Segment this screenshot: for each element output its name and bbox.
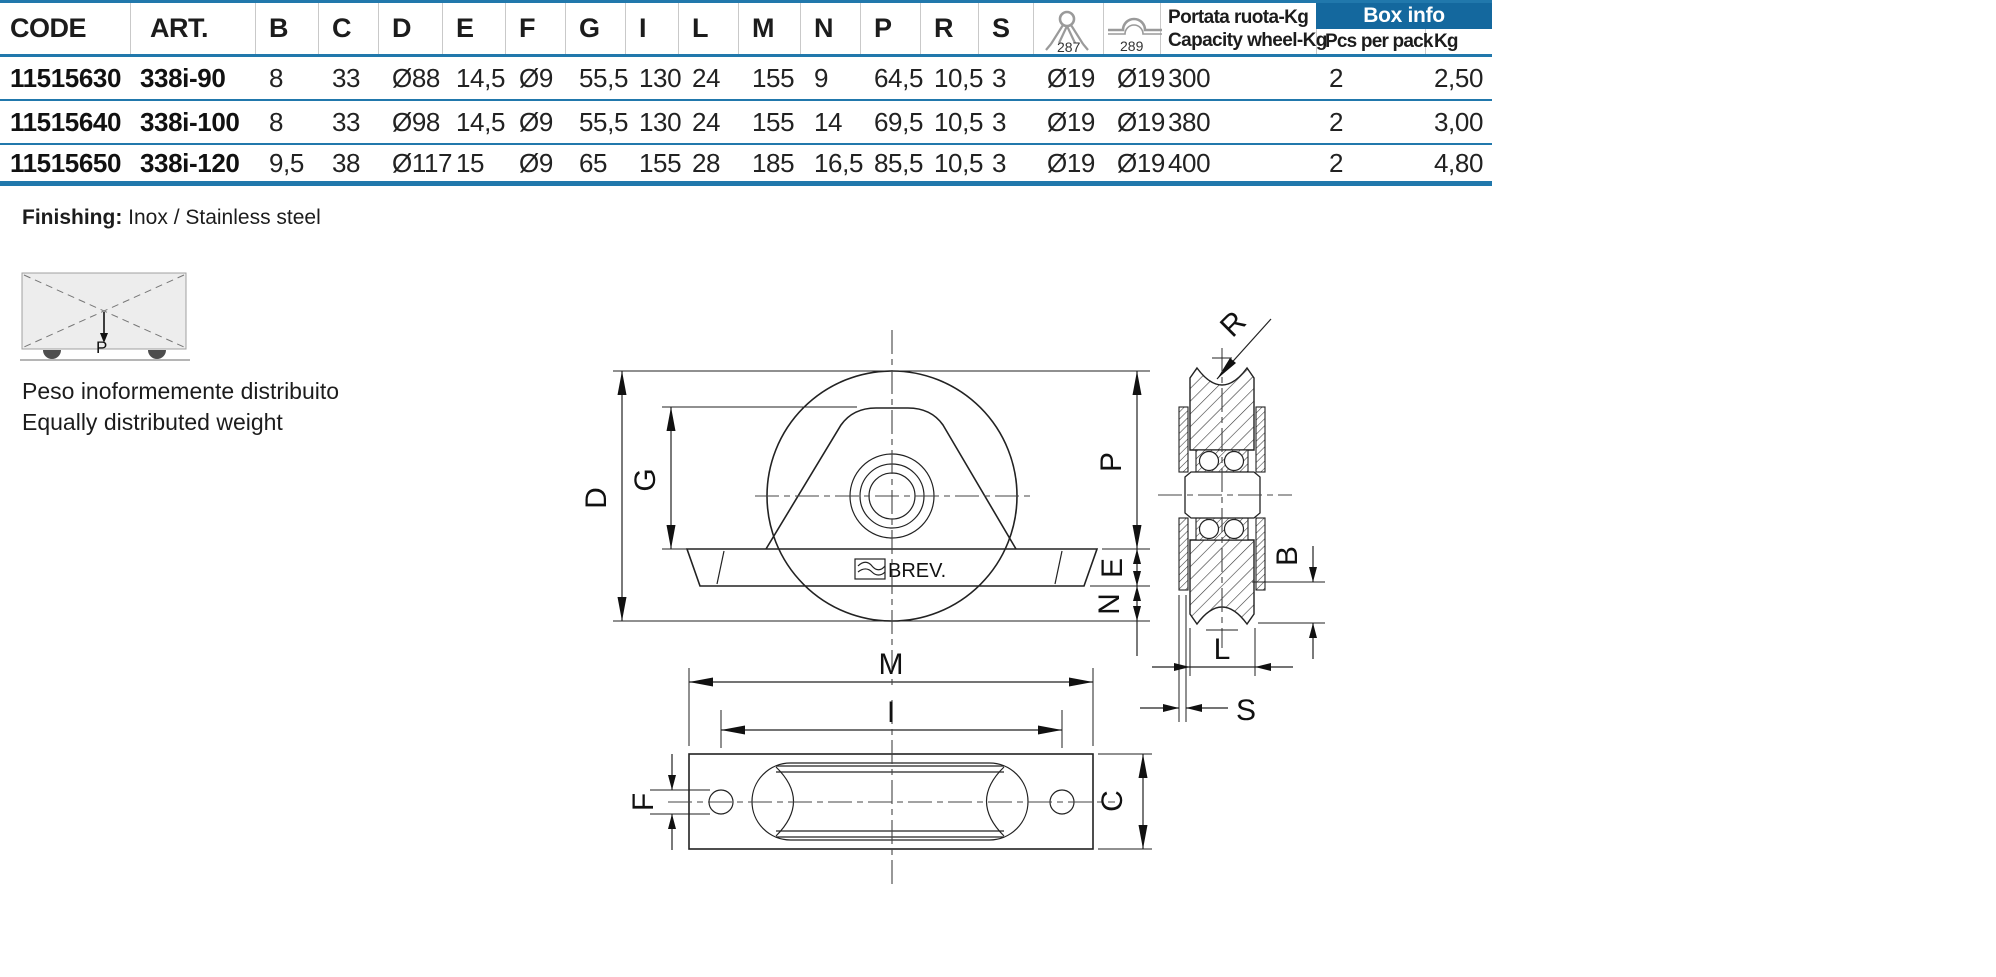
header-separator xyxy=(565,3,566,54)
header-separator xyxy=(1033,3,1034,54)
row-2-art: 338i-120 xyxy=(140,145,239,181)
side-plate xyxy=(1256,407,1265,472)
header-separator xyxy=(505,3,506,54)
col-header-F: F xyxy=(519,3,535,54)
col-header-capacity-it: Portata ruota-Kg xyxy=(1168,7,1308,29)
col-header-C: C xyxy=(332,3,351,54)
row-2-pcs: 2 xyxy=(1329,145,1343,181)
row-0-val-4: Ø9 xyxy=(519,57,553,99)
header-separator xyxy=(255,3,256,54)
row-0-val-7: 24 xyxy=(692,57,720,99)
svg-text:287: 287 xyxy=(1057,39,1081,54)
row-1-val-12: 3 xyxy=(992,101,1006,143)
table-rule-0 xyxy=(0,0,1492,3)
col-header-E: E xyxy=(456,3,474,54)
row-1-val-8: 155 xyxy=(752,101,794,143)
row-2-val-4: Ø9 xyxy=(519,145,553,181)
guide-289-icon: 289 xyxy=(1106,16,1164,59)
row-0-val-12: 3 xyxy=(992,57,1006,99)
row-2-val-10: 85,5 xyxy=(874,145,923,181)
row-2-val-14: Ø19 xyxy=(1117,145,1165,181)
row-1-art: 338i-100 xyxy=(140,101,239,143)
row-0-val-3: 14,5 xyxy=(456,57,505,99)
col-header-art: ART. xyxy=(150,3,208,54)
side-plate xyxy=(1179,518,1188,590)
bearing-ball xyxy=(1200,452,1219,471)
row-0-val-14: Ø19 xyxy=(1117,57,1165,99)
dim-label-L: L xyxy=(1214,633,1231,666)
col-header-pcs: Pcs per pack xyxy=(1325,29,1433,54)
row-0-val-1: 33 xyxy=(332,57,360,99)
dim-label-G: G xyxy=(629,468,662,491)
row-1-val-11: 10,5 xyxy=(934,101,983,143)
dim-label-M: M xyxy=(879,648,904,681)
header-separator xyxy=(678,3,679,54)
col-header-kg: Kg xyxy=(1434,29,1458,54)
dim-label-R: R xyxy=(1214,305,1253,344)
header-separator xyxy=(318,3,319,54)
header-separator xyxy=(860,3,861,54)
brand-text: BREV. xyxy=(888,560,946,582)
row-0-val-8: 155 xyxy=(752,57,794,99)
row-0-val-0: 8 xyxy=(269,57,283,99)
technical-drawing: P BREV. xyxy=(0,190,1996,977)
row-2-val-9: 16,5 xyxy=(814,145,863,181)
header-separator xyxy=(625,3,626,54)
dim-label-I: I xyxy=(887,696,895,729)
dim-label-N: N xyxy=(1093,593,1126,615)
product-spec-table: CODEART.BCDEFGILMNPRSPortata ruota-KgCap… xyxy=(0,0,1492,186)
row-0-val-2: Ø88 xyxy=(392,57,440,99)
guide-287-icon: 287 xyxy=(1040,6,1094,59)
col-header-B: B xyxy=(269,3,288,54)
row-1-val-1: 33 xyxy=(332,101,360,143)
col-header-M: M xyxy=(752,3,774,54)
dim-label-D: D xyxy=(580,487,613,509)
row-1-val-5: 55,5 xyxy=(579,101,628,143)
col-header-R: R xyxy=(934,3,953,54)
col-header-D: D xyxy=(392,3,411,54)
row-0-val-6: 130 xyxy=(639,57,681,99)
row-1-capacity: 380 xyxy=(1168,101,1210,143)
side-plate xyxy=(1179,407,1188,472)
row-1-kg: 3,00 xyxy=(1434,101,1483,143)
row-1-val-2: Ø98 xyxy=(392,101,440,143)
dim-label-P: P xyxy=(1095,452,1128,472)
gate-wheel-icon xyxy=(148,350,166,359)
side-section-view xyxy=(1179,319,1271,624)
col-header-L: L xyxy=(692,3,708,54)
row-2-val-11: 10,5 xyxy=(934,145,983,181)
header-separator xyxy=(738,3,739,54)
row-0-pcs: 2 xyxy=(1329,57,1343,99)
dim-label-F: F xyxy=(627,793,660,811)
row-2-val-5: 65 xyxy=(579,145,607,181)
catalog-page: CODEART.BCDEFGILMNPRSPortata ruota-KgCap… xyxy=(0,0,1996,977)
bearing-ball xyxy=(1225,452,1244,471)
svg-text:289: 289 xyxy=(1120,38,1144,54)
gate-wheel-icon xyxy=(43,350,61,359)
row-1-val-14: Ø19 xyxy=(1117,101,1165,143)
row-2-val-3: 15 xyxy=(456,145,484,181)
row-0-val-13: Ø19 xyxy=(1047,57,1095,99)
row-1-val-0: 8 xyxy=(269,101,283,143)
row-1-val-6: 130 xyxy=(639,101,681,143)
row-0-val-11: 10,5 xyxy=(934,57,983,99)
dim-label-C: C xyxy=(1096,790,1129,812)
table-rule-4 xyxy=(0,181,1492,186)
row-1-val-9: 14 xyxy=(814,101,842,143)
bearing-ball xyxy=(1225,520,1244,539)
row-2-val-12: 3 xyxy=(992,145,1006,181)
header-separator xyxy=(800,3,801,54)
dim-label-S: S xyxy=(1236,694,1256,727)
row-2-kg: 4,80 xyxy=(1434,145,1483,181)
row-2-val-0: 9,5 xyxy=(269,145,304,181)
row-1-code: 11515640 xyxy=(10,101,121,143)
header-separator xyxy=(130,3,131,54)
row-0-code: 11515630 xyxy=(10,57,121,99)
brand-logo: BREV. xyxy=(855,559,946,582)
header-separator xyxy=(442,3,443,54)
row-2-val-13: Ø19 xyxy=(1047,145,1095,181)
row-0-val-5: 55,5 xyxy=(579,57,628,99)
row-2-code: 11515650 xyxy=(10,145,121,181)
header-separator xyxy=(978,3,979,54)
header-separator xyxy=(920,3,921,54)
row-2-capacity: 400 xyxy=(1168,145,1210,181)
row-2-val-8: 185 xyxy=(752,145,794,181)
row-1-pcs: 2 xyxy=(1329,101,1343,143)
row-0-art: 338i-90 xyxy=(140,57,225,99)
header-separator xyxy=(1103,3,1104,54)
row-2-val-6: 155 xyxy=(639,145,681,181)
dim-label-B: B xyxy=(1271,546,1304,566)
row-0-val-10: 64,5 xyxy=(874,57,923,99)
row-0-kg: 2,50 xyxy=(1434,57,1483,99)
col-header-capacity-en: Capacity wheel-Kg xyxy=(1168,30,1327,52)
col-header-code: CODE xyxy=(10,3,86,54)
row-1-val-3: 14,5 xyxy=(456,101,505,143)
bearing-ball xyxy=(1200,520,1219,539)
row-2-val-2: Ø117 xyxy=(392,145,452,181)
box-info-header: Box info xyxy=(1316,3,1492,29)
dim-label-E: E xyxy=(1096,558,1129,578)
col-header-N: N xyxy=(814,3,833,54)
col-header-P: P xyxy=(874,3,892,54)
row-2-val-7: 28 xyxy=(692,145,720,181)
row-1-val-7: 24 xyxy=(692,101,720,143)
row-0-capacity: 300 xyxy=(1168,57,1210,99)
row-1-val-10: 69,5 xyxy=(874,101,923,143)
row-0-val-9: 9 xyxy=(814,57,828,99)
gate-load-diagram: P xyxy=(20,273,190,360)
row-1-val-4: Ø9 xyxy=(519,101,553,143)
col-header-I: I xyxy=(639,3,646,54)
row-1-val-13: Ø19 xyxy=(1047,101,1095,143)
col-header-G: G xyxy=(579,3,600,54)
row-2-val-1: 38 xyxy=(332,145,360,181)
side-plate xyxy=(1256,518,1265,590)
header-separator xyxy=(378,3,379,54)
col-header-S: S xyxy=(992,3,1010,54)
load-label: P xyxy=(96,338,107,357)
